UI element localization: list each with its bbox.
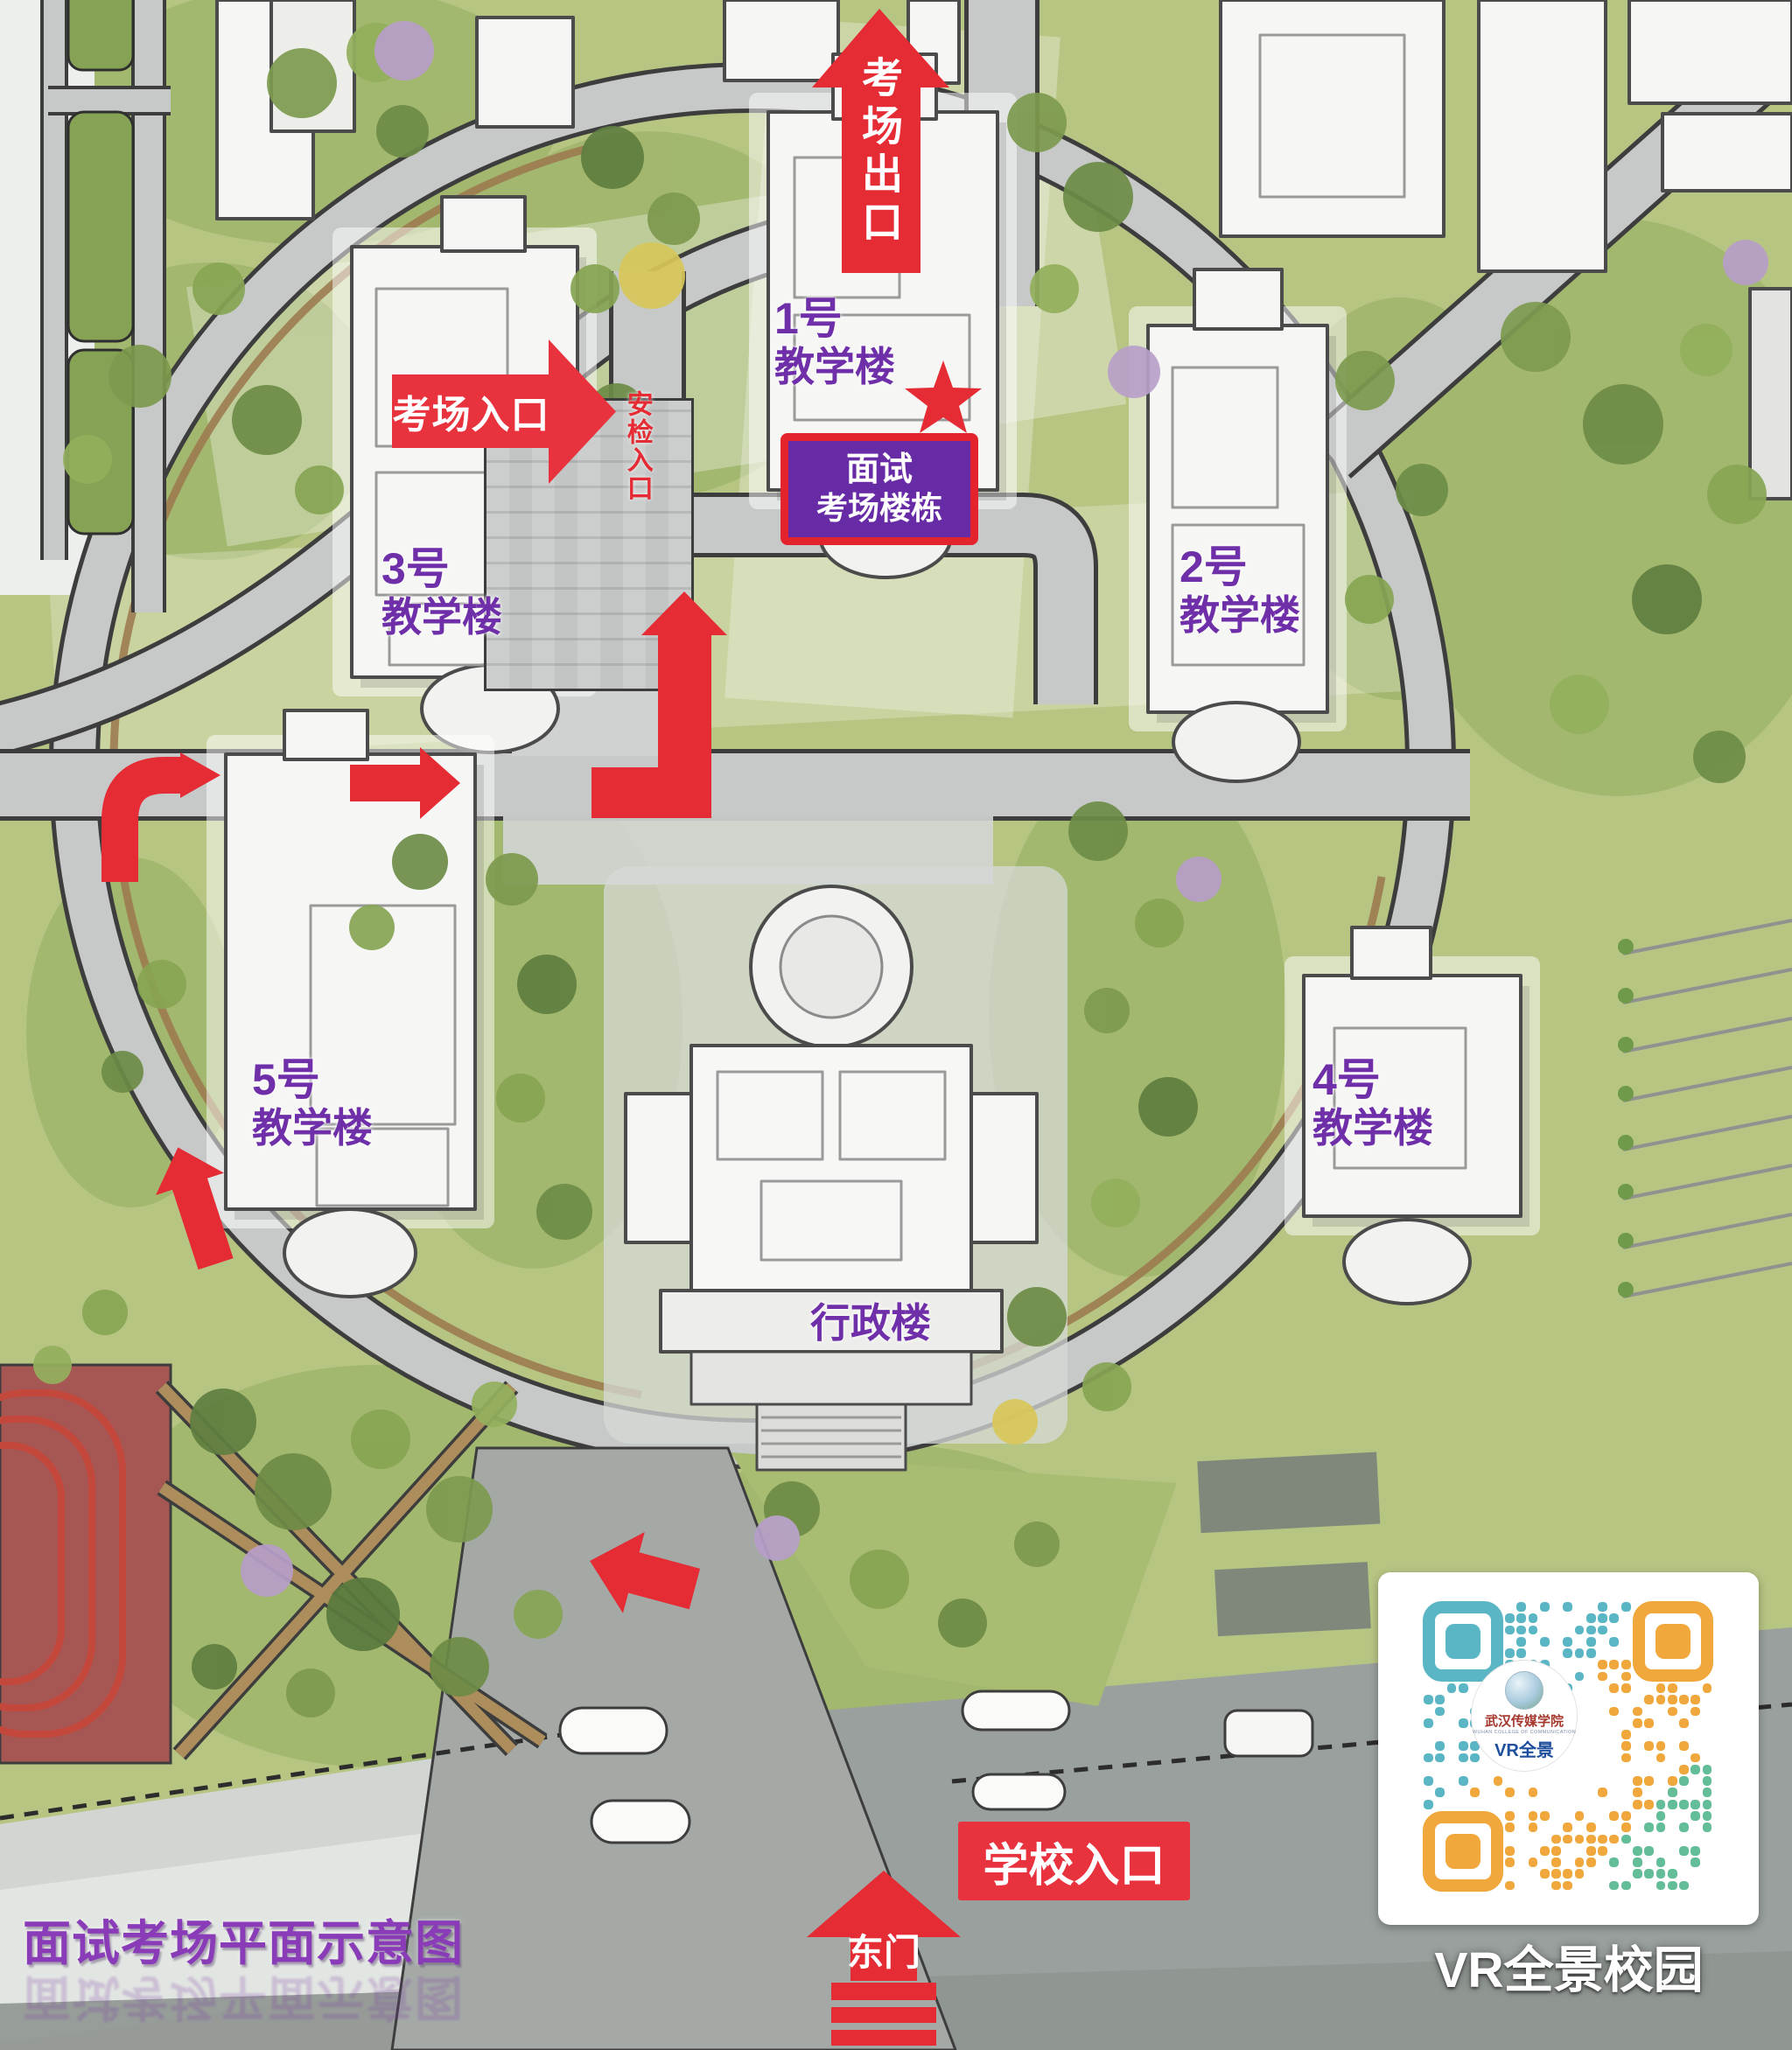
building-3-number: 3号	[381, 544, 502, 594]
campus-map-page: 考场出口 考场入口 安检入口 面试 考场楼栋 1号 教学楼 2号 教学楼 3号 …	[0, 0, 1792, 2050]
building-1-number: 1号	[774, 294, 895, 344]
qr-logo-vr-text: VR全景	[1494, 1736, 1554, 1761]
route-arrow-bottom	[579, 1521, 706, 1630]
qr-card: 武汉传媒学院 WUHAN COLLEGE OF COMMUNICATION VR…	[1378, 1572, 1759, 1925]
map-title: 面试考场平面示意图	[23, 1904, 464, 1974]
east-gate-label: 东门	[829, 1923, 938, 1977]
gate-stripe-3	[831, 2030, 936, 2046]
building-4-number: 4号	[1312, 1055, 1433, 1105]
qr-center-logo: 武汉传媒学院 WUHAN COLLEGE OF COMMUNICATION VR…	[1471, 1660, 1578, 1772]
gate-stripe-1	[831, 1983, 936, 2000]
building-1-name: 教学楼	[774, 344, 895, 389]
route-arrow-curved-head	[180, 752, 220, 798]
building-1-label: 1号 教学楼	[774, 294, 895, 389]
route-arrow-curved	[120, 775, 180, 882]
building-4-name: 教学楼	[1312, 1105, 1433, 1151]
interview-badge-line1: 面试	[846, 451, 913, 490]
qr-logo-school-name-en: WUHAN COLLEGE OF COMMUNICATION	[1473, 1730, 1576, 1735]
building-3-name: 教学楼	[381, 594, 502, 640]
security-route-arrow	[591, 591, 727, 818]
security-entrance-label: 安检入口	[623, 390, 651, 502]
building-5-number: 5号	[252, 1055, 373, 1105]
building-2-name: 教学楼	[1179, 592, 1300, 638]
school-logo-globe-icon	[1505, 1671, 1543, 1710]
map-title-reflection: 面试考场平面示意图	[23, 1967, 464, 2037]
admin-building-label: 行政楼	[810, 1300, 931, 1346]
building-5-name: 教学楼	[252, 1105, 373, 1151]
route-arrow-up-left	[143, 1137, 249, 1275]
school-entrance-banner: 学校入口	[958, 1822, 1190, 1900]
location-star-icon	[905, 360, 982, 433]
interview-building-badge: 面试 考场楼栋	[780, 433, 978, 545]
building-2-label: 2号 教学楼	[1179, 542, 1300, 638]
exam-exit-label: 考场出口	[858, 56, 899, 248]
gate-stripe-2	[831, 2007, 936, 2023]
qr-caption: VR全景校园	[1381, 1930, 1757, 2002]
interview-badge-line2: 考场楼栋	[816, 490, 942, 527]
qr-logo-school-name: 武汉传媒学院	[1485, 1711, 1564, 1730]
exam-entrance-banner: 考场入口	[392, 374, 550, 448]
building-5-label: 5号 教学楼	[252, 1055, 373, 1151]
building-4-label: 4号 教学楼	[1312, 1055, 1433, 1151]
route-arrow-right	[350, 747, 460, 819]
building-3-label: 3号 教学楼	[381, 544, 502, 640]
building-2-number: 2号	[1179, 542, 1300, 592]
